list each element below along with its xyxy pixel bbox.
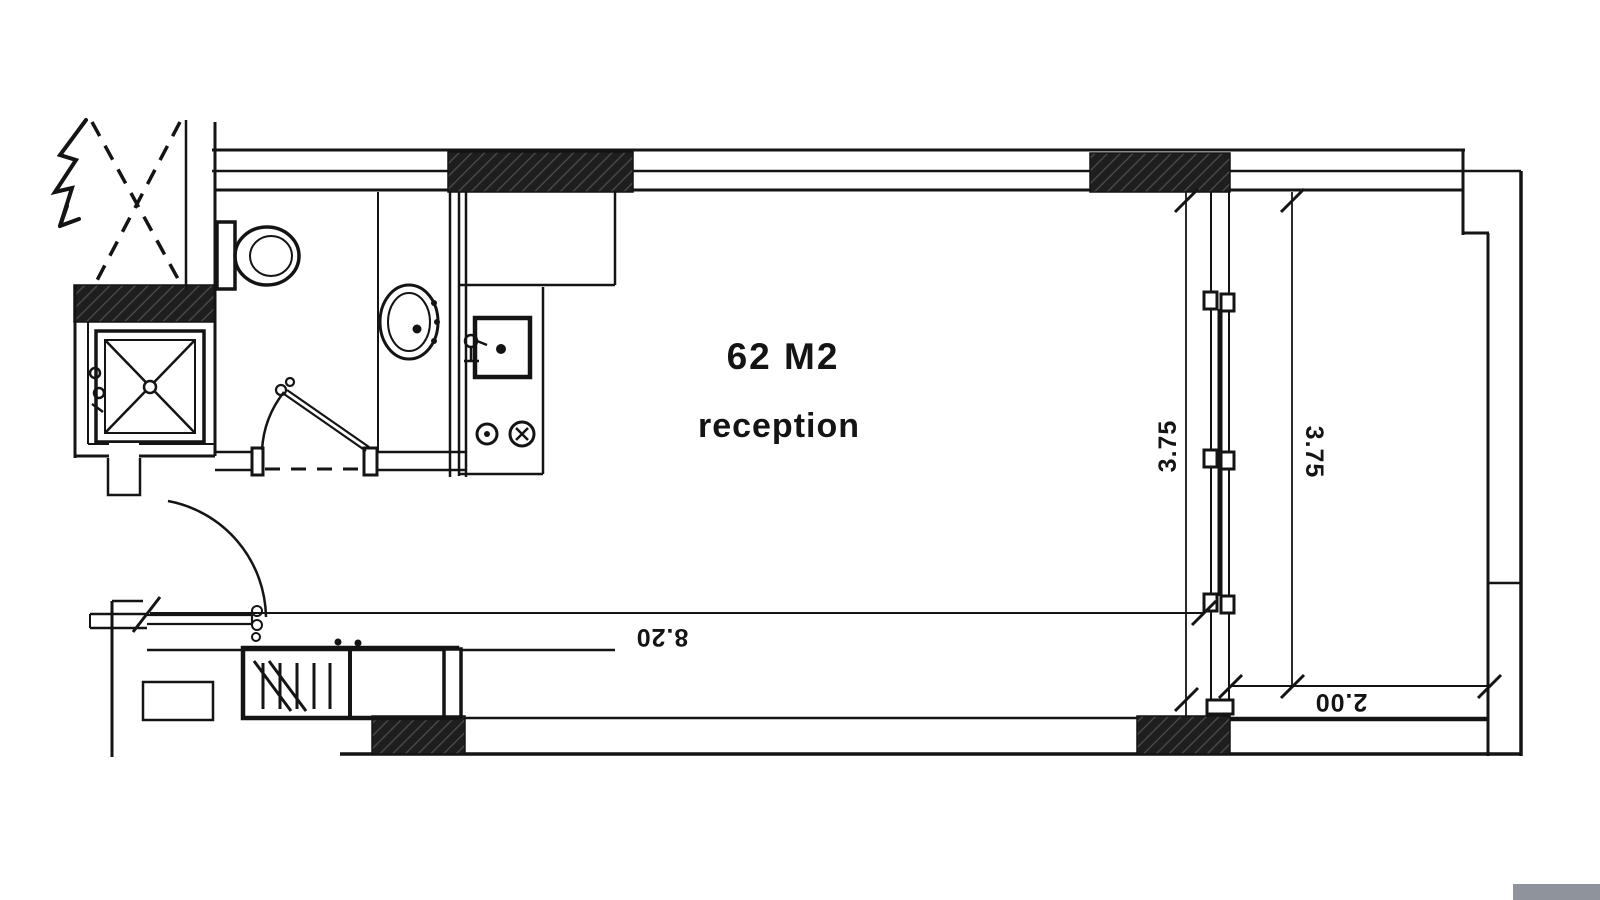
dimension-lines [150,189,1501,716]
dim-balcony-width: 2.00 [1315,688,1368,716]
labels: 62 M2 reception 8.20 3.75 3.75 2.00 [636,336,1368,716]
bathroom-sink [378,192,440,452]
bathroom-door [252,378,377,475]
kitchen-counter [459,192,615,476]
toilet [217,222,299,289]
floor-plan-drawing: 62 M2 reception 8.20 3.75 3.75 2.00 [0,0,1600,900]
floor-plan-canvas: 62 M2 reception 8.20 3.75 3.75 2.00 [0,0,1600,900]
dim-room-depth: 3.75 [1154,420,1182,473]
room-label: reception [698,407,860,445]
entry-door [90,501,266,641]
scrollbar-corner[interactable] [1513,884,1600,900]
dim-room-width: 8.20 [636,623,689,651]
stove-burners-icon [477,422,534,446]
entry-mat [143,682,213,720]
area-label: 62 M2 [727,336,840,377]
sliding-window [1204,192,1234,715]
kitchen-sink [464,318,530,377]
entry-arrow [55,120,86,226]
dim-balcony-depth: 3.75 [1300,426,1328,479]
wall-notch [108,443,140,495]
